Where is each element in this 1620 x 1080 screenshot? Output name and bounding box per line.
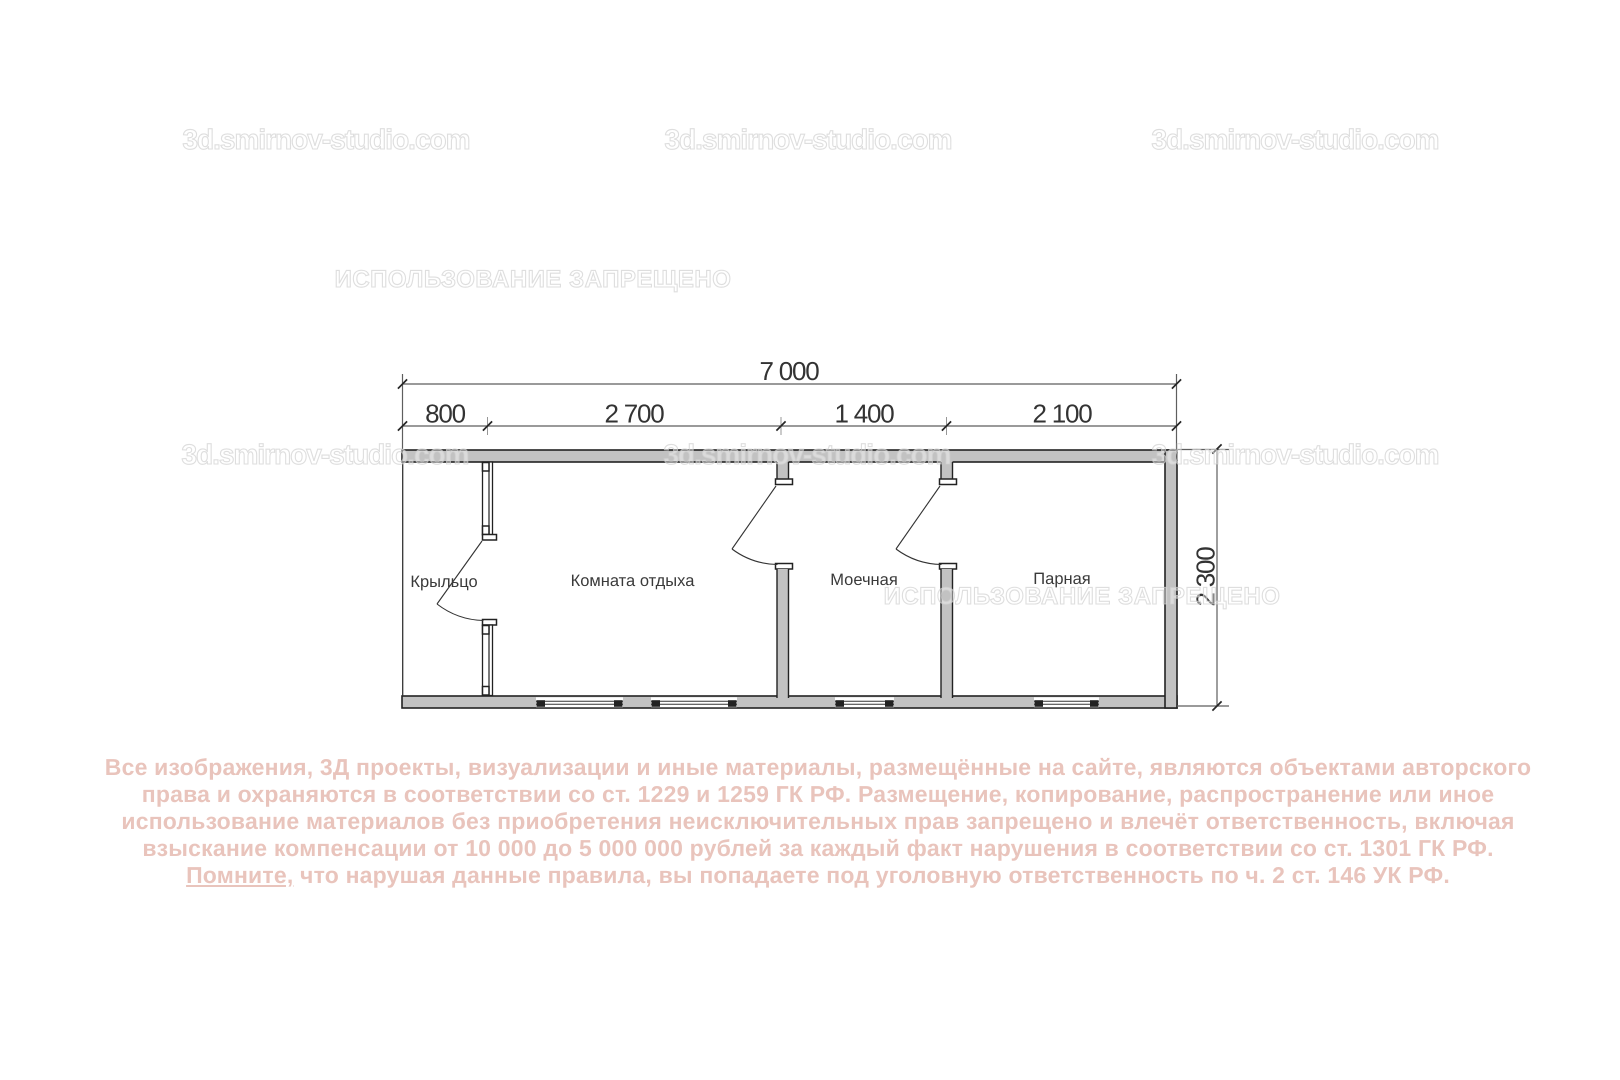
svg-text:2 100: 2 100 (1032, 399, 1092, 429)
svg-text:Крыльцо: Крыльцо (410, 573, 477, 591)
svg-text:800: 800 (425, 399, 466, 429)
svg-text:1 400: 1 400 (834, 399, 894, 429)
svg-text:7 000: 7 000 (759, 356, 819, 386)
svg-text:2 700: 2 700 (604, 399, 664, 429)
svg-text:Комната отдыха: Комната отдыха (571, 572, 696, 590)
